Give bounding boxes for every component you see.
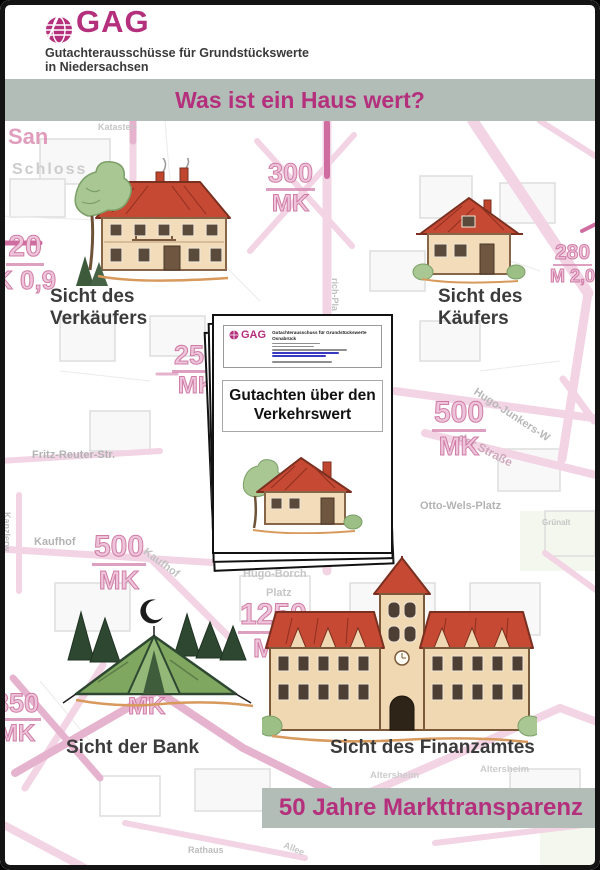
caption-seller-line1: Sicht des [50, 286, 147, 308]
street-label: Altersheim [480, 764, 529, 775]
street-label: Grünalt [542, 518, 570, 527]
land-value-label: 500 MK [92, 532, 146, 593]
document-letterhead: GAG Gutachterausschuss für Grundstückswe… [223, 325, 382, 368]
land-value-unit: MK [92, 567, 146, 593]
land-value-unit: MK [266, 192, 315, 216]
caption-buyer-line2: Käufers [438, 308, 522, 330]
land-value-unit: MK [0, 722, 41, 746]
letterhead-office-city: Osnabrück [272, 336, 376, 342]
letterhead-address-block: Gutachterausschuss für Grundstückswerte … [272, 330, 376, 363]
letterhead-brand: GAG [241, 330, 266, 341]
street-label: rich-Pla [330, 278, 340, 311]
land-value-label: 20 K 0,9 [0, 232, 56, 293]
street-label: Otto-Wels-Platz [420, 500, 501, 512]
caption-buyer: Sicht des Käufers [438, 286, 522, 330]
caption-seller: Sicht des Verkäufers [50, 286, 147, 330]
land-value-label: 280 M 2,0 [550, 242, 595, 285]
land-value-number: 300 [266, 160, 315, 191]
street-label: Kataster- [98, 122, 137, 132]
appraisal-document: GAG Gutachterausschuss für Grundstückswe… [212, 314, 393, 554]
poster-page: GAG Gutachterausschüsse für Grundstücksw… [0, 0, 600, 870]
land-value-number: 500 [92, 532, 146, 566]
land-value-unit: MK [432, 433, 486, 459]
anniversary-text: 50 Jahre Markttransparenz [279, 794, 583, 822]
buyer-house-illustration [412, 192, 527, 284]
brand-title: GAG [76, 4, 150, 40]
letterhead-text-line [272, 343, 320, 345]
letterhead-link-line [272, 352, 339, 354]
land-value-label: 300 MK [266, 160, 315, 216]
seller-house-illustration [68, 158, 238, 290]
land-value-unit: M 2,0 [550, 267, 595, 285]
street-label: San [8, 124, 48, 150]
letterhead-globe-icon [229, 330, 239, 340]
street-label: Kaufhof [34, 536, 76, 548]
document-sheet-front: GAG Gutachterausschuss für Grundstückswe… [212, 314, 393, 554]
land-value-number: 280 [553, 242, 592, 266]
land-value-number: 500 [432, 398, 486, 432]
city-map-background: San Schloss Kataster- Fritz-Reuter-Str. … [0, 121, 600, 870]
letterhead-office-name: Gutachterausschuss für Grundstückswerte [272, 330, 376, 336]
document-title-line1: Gutachten über den [225, 386, 380, 405]
brand-subtitle-line1: Gutachterausschüsse für Grundstückswerte [45, 46, 309, 60]
land-value-unit: K 0,9 [0, 267, 56, 293]
land-value-number: 350 [0, 690, 41, 721]
document-title-line2: Verkehrswert [225, 405, 380, 424]
brand-subtitle: Gutachterausschüsse für Grundstückswerte… [45, 46, 309, 74]
gag-globe-icon [44, 15, 74, 45]
street-label: Fritz-Reuter-Str. [32, 449, 115, 461]
letterhead-text-line [272, 346, 314, 348]
caption-seller-line2: Verkäufers [50, 308, 147, 330]
street-label: Rathaus [188, 845, 224, 855]
caption-buyer-line1: Sicht des [438, 286, 522, 308]
land-value-number: 20 [6, 232, 43, 266]
letterhead-link-line [272, 355, 326, 357]
land-value-label: 500 MK [432, 398, 486, 459]
bank-tent-illustration [58, 596, 258, 708]
caption-bank: Sicht der Bank [66, 737, 199, 759]
anniversary-banner: 50 Jahre Markttransparenz [262, 788, 600, 828]
letterhead-gag-logo: GAG [229, 330, 266, 363]
street-label: Kanzlerw [2, 512, 12, 552]
land-value-label: 350 MK [0, 690, 41, 746]
caption-tax-office: Sicht des Finanzamtes [330, 737, 535, 759]
tax-office-illustration [262, 556, 537, 746]
title-banner: Was ist ein Haus wert? [0, 79, 600, 121]
letterhead-text-line [272, 349, 347, 351]
poster-title: Was ist ein Haus wert? [175, 87, 425, 114]
street-label: Altersheim [370, 770, 419, 781]
document-title: Gutachten über den Verkehrswert [222, 380, 383, 432]
brand-subtitle-line2: in Niedersachsen [45, 60, 309, 74]
document-house-illustration [237, 440, 369, 534]
letterhead-reference-line [272, 361, 332, 363]
